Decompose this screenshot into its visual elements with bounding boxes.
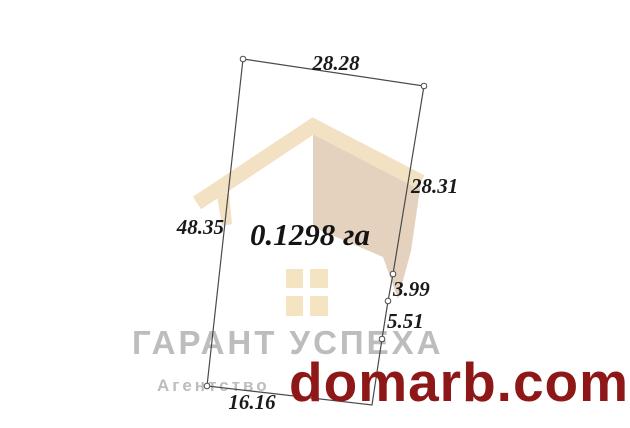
dimension-label-left: 48.35 [177,217,224,238]
dimension-label-bottom: 16.16 [228,392,275,413]
vertex-marker [379,336,385,342]
vertex-marker [385,298,391,304]
dimension-label-right-lower: 5.51 [387,311,424,332]
site-domain-watermark: domarb.com [289,355,629,410]
area-label: 0.1298 га [250,219,370,250]
dimension-label-right-upper: 28.31 [411,176,458,197]
vertex-marker [204,383,210,389]
vertex-marker [240,56,246,62]
land-plot-diagram: ГАРАНТ УСПЕХА Агентство 28.28 28.31 48.3… [0,0,630,428]
dimension-label-right-mid: 3.99 [393,279,430,300]
dimension-label-top: 28.28 [312,53,359,74]
vertex-marker [390,271,396,277]
vertex-marker [421,83,427,89]
